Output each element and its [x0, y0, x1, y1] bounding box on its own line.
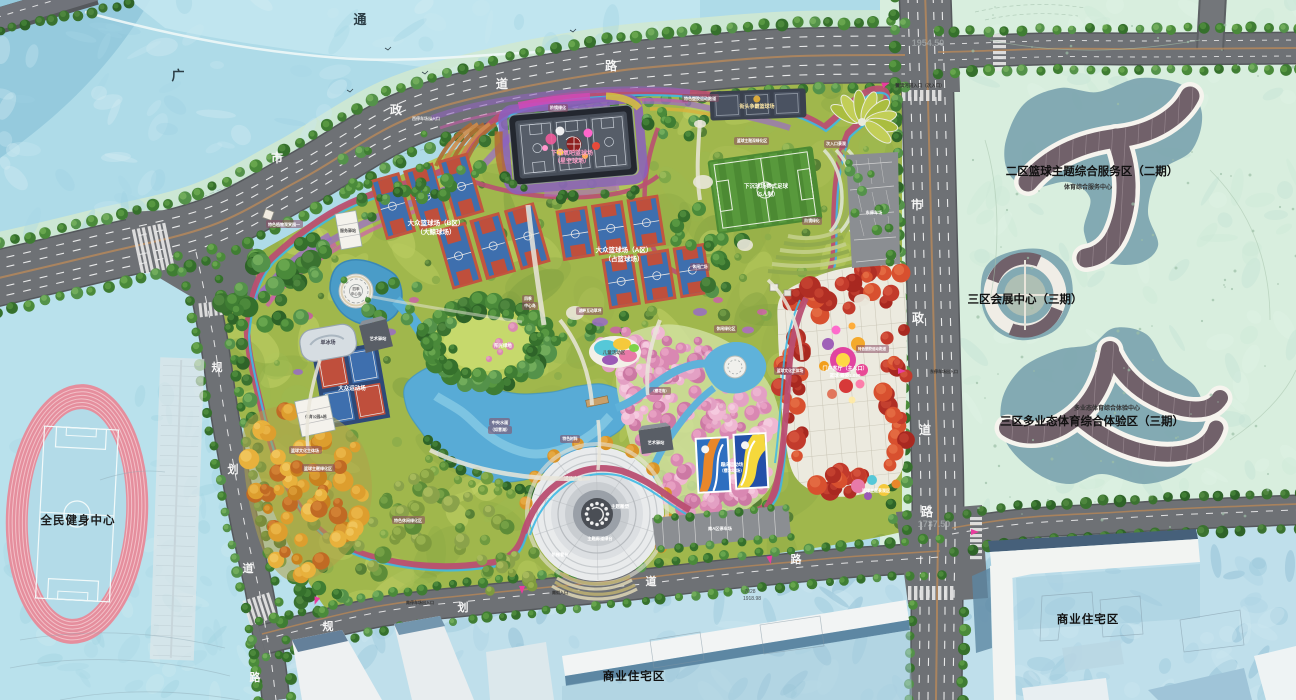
svg-text:门户客厅（主入口）: 门户客厅（主入口） [822, 365, 867, 372]
svg-text:大众篮球场（B区）: 大众篮球场（B区） [408, 218, 465, 227]
svg-text:划: 划 [458, 600, 469, 614]
svg-text:7028: 7028 [744, 589, 755, 595]
svg-text:主题廊道绿台: 主题廊道绿台 [587, 535, 612, 542]
svg-text:中央水面: 中央水面 [492, 419, 510, 426]
svg-text:街头争霸篮球场: 街头争霸篮球场 [738, 103, 774, 110]
svg-text:政: 政 [912, 310, 925, 325]
svg-text:三区会展中心（三期）: 三区会展中心（三期） [968, 292, 1083, 306]
svg-text:篮球主题景观区: 篮球主题景观区 [861, 487, 890, 493]
svg-text:道: 道 [646, 574, 657, 588]
svg-text:1954.50: 1954.50 [912, 38, 945, 48]
svg-text:市: 市 [911, 197, 923, 212]
svg-text:篮球文化主体场: 篮球文化主体场 [290, 447, 319, 453]
svg-text:市: 市 [271, 150, 283, 165]
svg-text:西停车场出入口: 西停车场出入口 [412, 115, 440, 121]
svg-text:儿童活动区: 儿童活动区 [602, 349, 626, 356]
svg-text:路: 路 [921, 504, 934, 519]
svg-text:商业住宅区: 商业住宅区 [603, 669, 666, 683]
svg-text:阶镜绿化: 阶镜绿化 [550, 104, 566, 110]
svg-text:蟹滨河道入口（次入口）: 蟹滨河道入口（次入口） [895, 82, 945, 89]
svg-text:通: 通 [353, 12, 366, 27]
svg-text:篮球主题深绿化区: 篮球主题深绿化区 [736, 138, 768, 143]
svg-text:南侧入口: 南侧入口 [552, 589, 568, 595]
svg-text:下沉球场赛式足球: 下沉球场赛式足球 [744, 182, 789, 190]
svg-text:商业住宅区: 商业住宅区 [1057, 612, 1120, 626]
svg-text:四季: 四季 [524, 296, 532, 301]
svg-text:东停车场出入口: 东停车场出入口 [930, 368, 958, 374]
svg-text:路: 路 [605, 58, 618, 73]
svg-text:大众运动场: 大众运动场 [338, 384, 366, 392]
svg-text:（樱花岛）: （樱花岛） [651, 388, 669, 393]
svg-text:休闲广场: 休闲广场 [691, 264, 707, 269]
svg-text:中心岛: 中心岛 [351, 291, 362, 296]
svg-text:南A区停车场: 南A区停车场 [708, 525, 733, 532]
svg-text:规: 规 [323, 619, 334, 633]
svg-text:大众篮球场（A区）: 大众篮球场（A区） [596, 245, 653, 254]
svg-text:二区篮球主题综合服务区（二期）: 二区篮球主题综合服务区（二期） [1006, 164, 1179, 178]
svg-text:特色塑胶运动跑道: 特色塑胶运动跑道 [684, 95, 716, 101]
svg-text:道: 道 [243, 561, 254, 575]
svg-text:广: 广 [171, 68, 184, 83]
svg-text:特色植物观赏园一: 特色植物观赏园一 [268, 221, 300, 227]
svg-text:道: 道 [919, 422, 931, 437]
svg-text:路: 路 [250, 670, 262, 684]
svg-text:四季: 四季 [353, 286, 361, 291]
svg-text:（星空球场）: （星空球场） [554, 157, 590, 165]
svg-text:次入口景观: 次入口景观 [826, 140, 846, 146]
svg-text:艺术驿站: 艺术驿站 [648, 439, 666, 446]
svg-text:服务驿站: 服务驿站 [339, 227, 356, 233]
svg-text:南停车场出入口: 南停车场出入口 [406, 599, 434, 605]
svg-text:休闲绿化区: 休闲绿化区 [716, 326, 736, 331]
svg-text:（樱木球场）: （樱木球场） [719, 467, 744, 474]
svg-text:单冰场: 单冰场 [320, 339, 335, 346]
svg-text:特色塑胶运动跑道: 特色塑胶运动跑道 [858, 346, 886, 351]
svg-text:（如意湖）: （如意湖） [490, 426, 510, 432]
svg-text:主题雕塑: 主题雕塑 [611, 503, 629, 510]
svg-text:（大鲸球场）: （大鲸球场） [417, 227, 456, 236]
svg-text:体育综合服务中心: 体育综合服务中心 [1064, 183, 1112, 191]
svg-text:（5人制）: （5人制） [753, 190, 778, 198]
svg-text:特色树阵: 特色树阵 [562, 436, 577, 441]
svg-text:多业态体育综合体验中心: 多业态体育综合体验中心 [1074, 404, 1140, 412]
svg-text:三区多业态体育综合体验区（三期）: 三区多业态体育综合体验区（三期） [1000, 414, 1184, 428]
svg-text:1918.98: 1918.98 [743, 596, 761, 602]
svg-text:篮球文化主体场: 篮球文化主体场 [776, 368, 804, 373]
svg-text:全民健身中心: 全民健身中心 [40, 513, 116, 527]
svg-text:特色休闲绿化区: 特色休闲绿化区 [394, 517, 422, 523]
svg-text:阶镜绿化: 阶镜绿化 [804, 218, 819, 223]
svg-text:1737.50: 1737.50 [918, 519, 951, 529]
svg-text:路: 路 [791, 552, 803, 566]
svg-text:划: 划 [228, 462, 239, 476]
svg-text:篮球主题绿化区: 篮球主题绿化区 [303, 465, 332, 471]
svg-text:中心岛: 中心岛 [524, 303, 536, 308]
svg-text:艺术驿站: 艺术驿站 [370, 335, 388, 342]
svg-text:（占篮球场）: （占篮球场） [605, 254, 644, 263]
svg-text:规: 规 [212, 360, 223, 374]
svg-text:政: 政 [390, 102, 403, 117]
svg-text:东停车场: 东停车场 [866, 209, 884, 216]
svg-text:下沉氧吧篮球场: 下沉氧吧篮球场 [551, 149, 593, 157]
svg-text:篮球·蝶姿1.030: 篮球·蝶姿1.030 [830, 372, 861, 379]
svg-text:阳光绿地: 阳光绿地 [494, 342, 512, 349]
svg-text:湖畔互动草坪: 湖畔互动草坪 [579, 308, 602, 313]
svg-text:道: 道 [496, 76, 508, 91]
svg-text:蹦床运动场: 蹦床运动场 [721, 461, 744, 468]
svg-text:阶梯看台: 阶梯看台 [552, 551, 569, 558]
